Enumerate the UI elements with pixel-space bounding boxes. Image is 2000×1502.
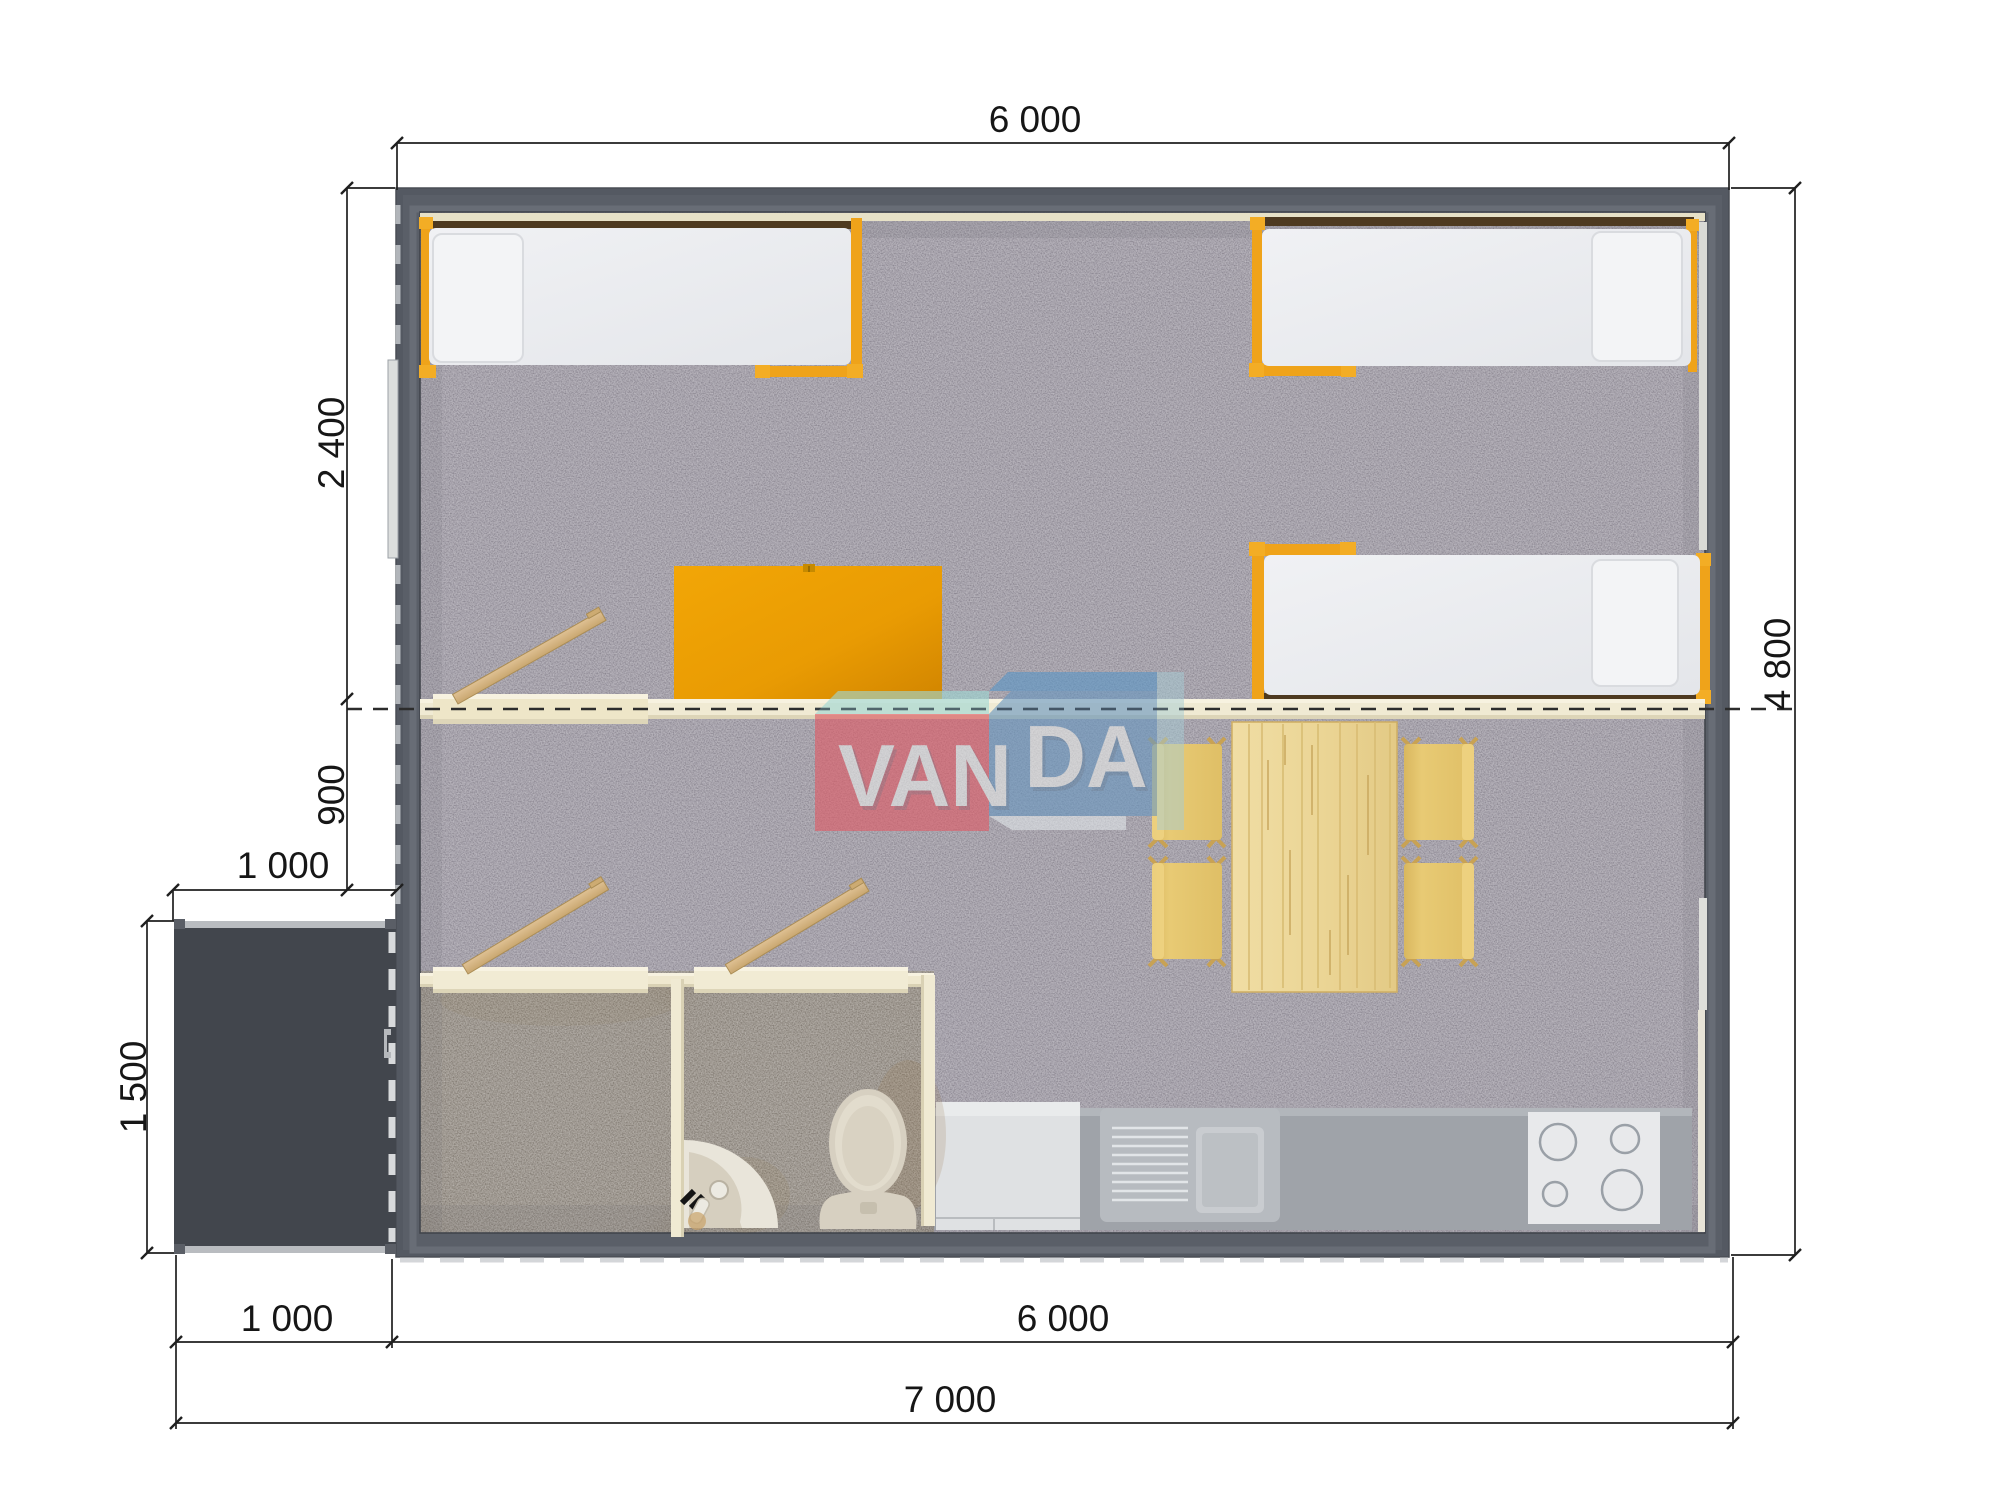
svg-text:VAN: VAN <box>838 728 1012 825</box>
svg-text:1 000: 1 000 <box>237 845 330 886</box>
svg-text:900: 900 <box>311 764 352 826</box>
svg-text:1 500: 1 500 <box>113 1041 154 1134</box>
svg-text:4 800: 4 800 <box>1757 618 1798 711</box>
svg-text:2 400: 2 400 <box>311 397 352 490</box>
svg-text:6 000: 6 000 <box>1017 1298 1110 1339</box>
svg-text:1 000: 1 000 <box>241 1298 334 1339</box>
svg-text:6 000: 6 000 <box>989 99 1082 140</box>
svg-text:7 000: 7 000 <box>904 1379 997 1420</box>
svg-text:DA: DA <box>1024 709 1147 806</box>
